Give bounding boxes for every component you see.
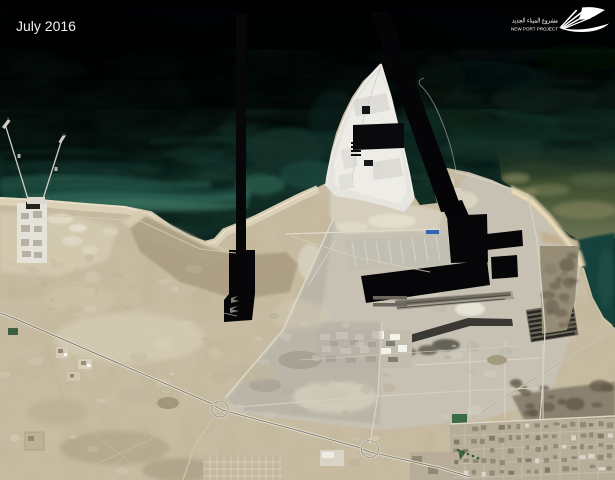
svg-text:مشروع الميناء الجديد: مشروع الميناء الجديد (512, 17, 558, 25)
svg-text:July 2016: July 2016 (16, 18, 76, 34)
svg-text:NEW PORT PROJECT: NEW PORT PROJECT (511, 27, 558, 32)
